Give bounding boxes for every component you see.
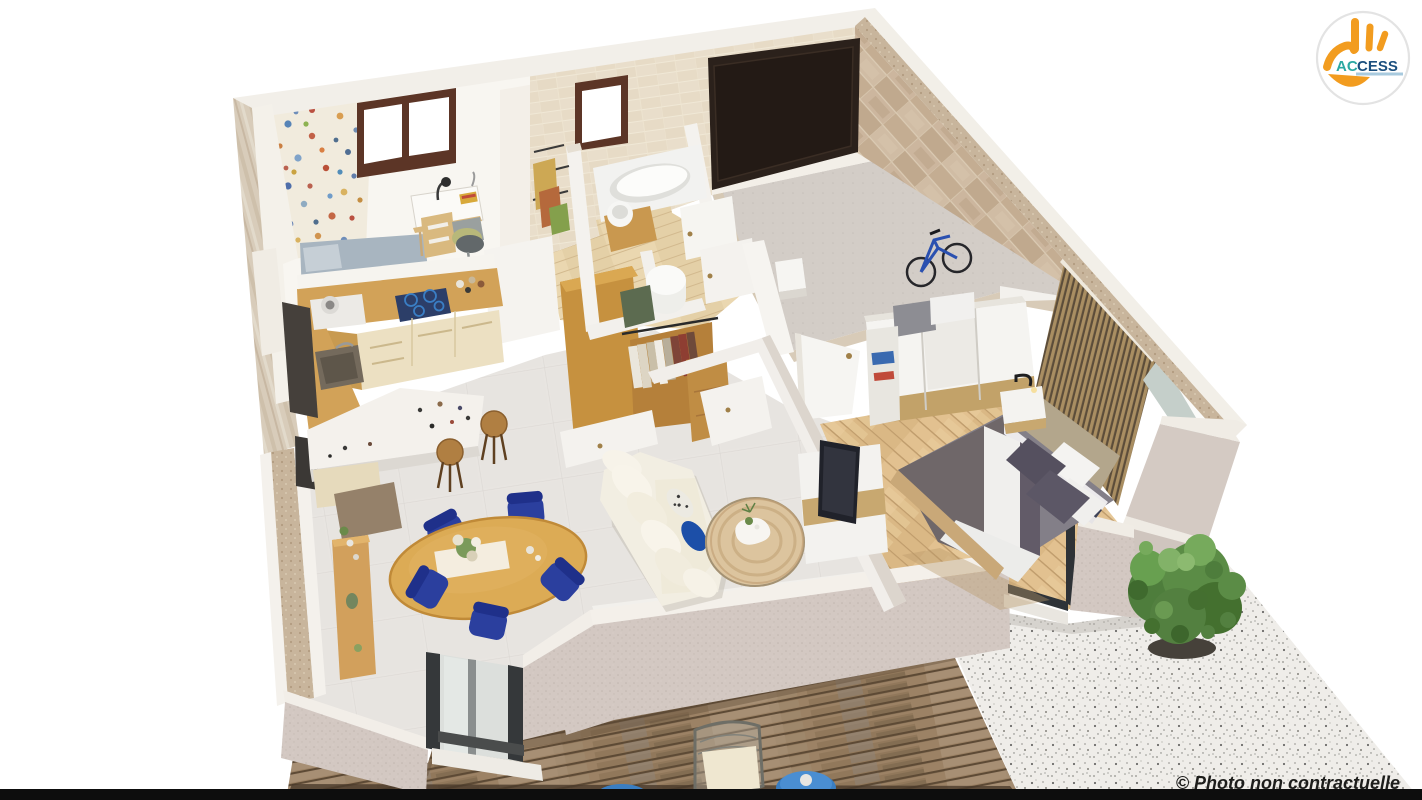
svg-text:CESS: CESS: [1357, 58, 1398, 75]
svg-text:AC: AC: [1336, 58, 1358, 75]
